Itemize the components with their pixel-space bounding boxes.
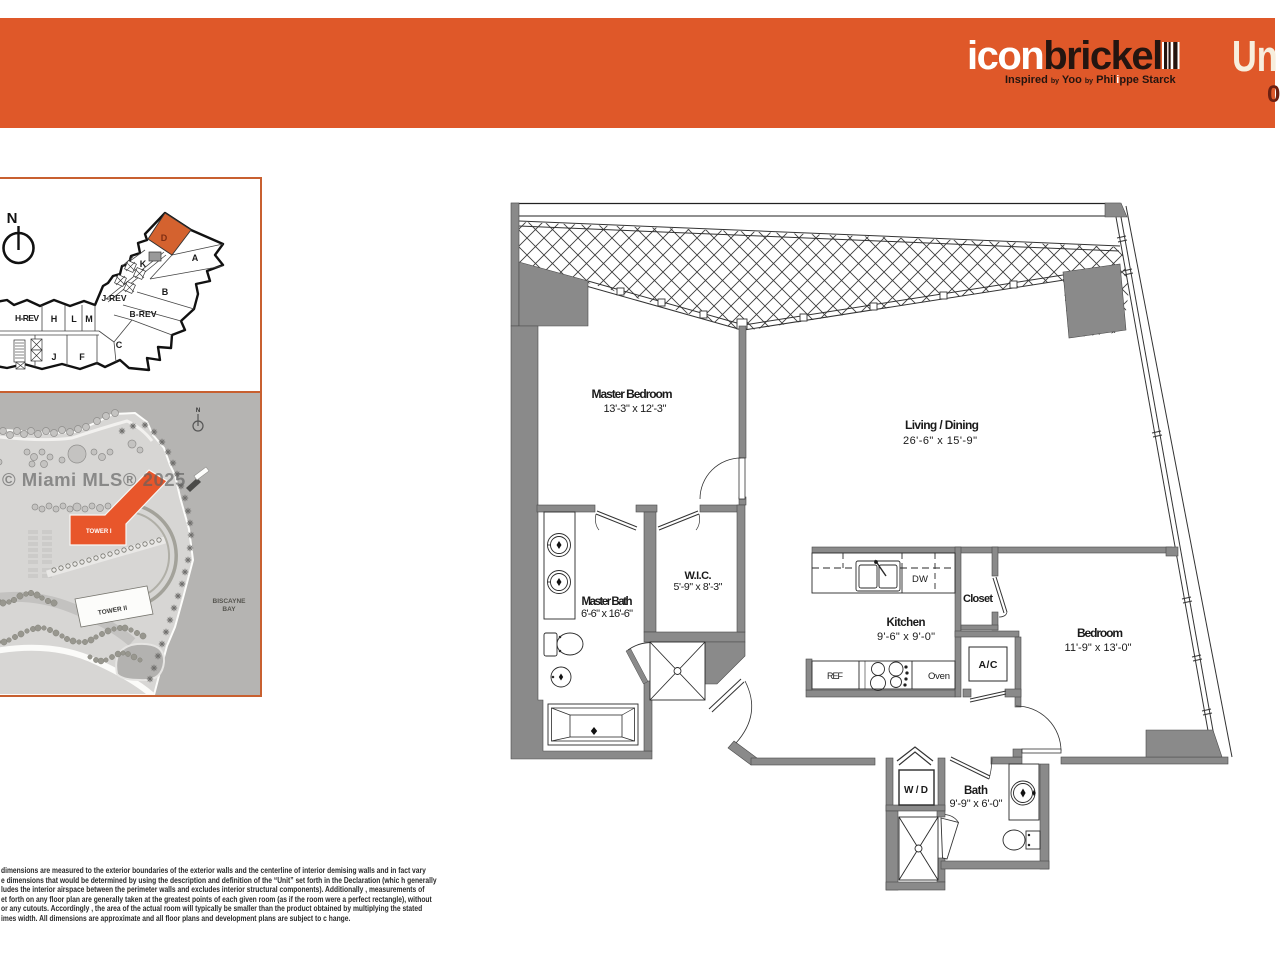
svg-text:B-REV: B-REV xyxy=(130,309,157,319)
svg-text:11'-9" x 13'-0": 11'-9" x 13'-0" xyxy=(1065,642,1132,654)
svg-text:J: J xyxy=(51,352,56,362)
svg-text:26'-6" x 15'-9": 26'-6" x 15'-9" xyxy=(903,435,977,447)
svg-text:H-REV: H-REV xyxy=(15,313,39,323)
svg-text:M: M xyxy=(85,314,93,324)
svg-text:A/C: A/C xyxy=(979,659,998,671)
svg-text:Bath: Bath xyxy=(964,785,988,797)
svg-text:N: N xyxy=(196,408,200,414)
svg-text:A: A xyxy=(192,253,199,263)
svg-text:Closet: Closet xyxy=(963,593,993,605)
svg-text:9'-9" x 6'-0": 9'-9" x 6'-0" xyxy=(950,798,1003,810)
svg-text:13'-3" x 12'-3": 13'-3" x 12'-3" xyxy=(604,403,667,415)
svg-text:REF: REF xyxy=(827,671,844,681)
svg-text:Living / Dining: Living / Dining xyxy=(905,418,979,432)
svg-text:L: L xyxy=(71,314,77,324)
svg-text:6'-6" x 16'-6": 6'-6" x 16'-6" xyxy=(581,608,633,620)
svg-text:Kitchen: Kitchen xyxy=(887,617,926,629)
svg-text:N: N xyxy=(7,210,18,227)
svg-text:TOWER I: TOWER I xyxy=(86,529,112,535)
svg-text:F: F xyxy=(79,352,85,362)
svg-text:Bedroom: Bedroom xyxy=(1077,626,1123,640)
svg-text:C: C xyxy=(116,340,123,350)
svg-text:B: B xyxy=(162,287,169,297)
svg-text:K: K xyxy=(140,259,147,269)
svg-text:H: H xyxy=(51,314,58,324)
svg-text:9'-6" x 9'-0": 9'-6" x 9'-0" xyxy=(877,631,935,643)
svg-text:J-REV: J-REV xyxy=(102,293,127,303)
svg-text:5'-9" x 8'-3": 5'-9" x 8'-3" xyxy=(674,581,723,593)
svg-text:BAY: BAY xyxy=(222,606,236,613)
svg-text:W/D: W/D xyxy=(904,785,928,796)
svg-text:D: D xyxy=(161,233,168,243)
svg-text:Master Bath: Master Bath xyxy=(582,596,633,608)
svg-text:BISCAYNE: BISCAYNE xyxy=(213,598,247,605)
svg-text:Oven: Oven xyxy=(928,671,950,682)
svg-text:DW: DW xyxy=(912,574,928,585)
svg-text:Master Bedroom: Master Bedroom xyxy=(592,387,673,401)
